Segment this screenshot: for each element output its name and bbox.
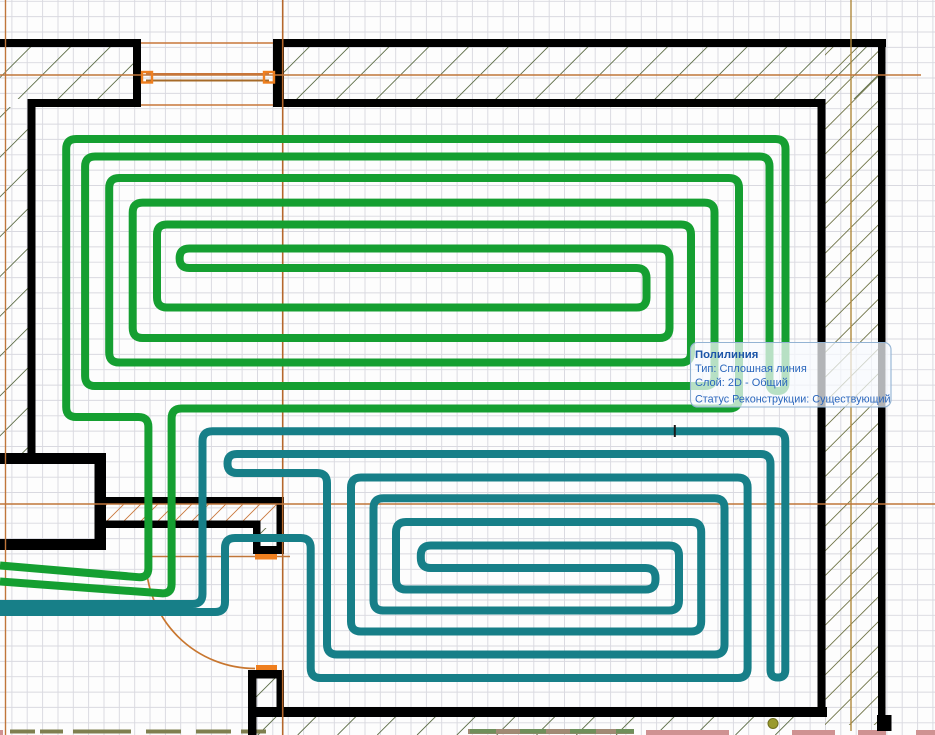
svg-text:Тип: Сплошная линия: Тип: Сплошная линия — [695, 363, 807, 375]
svg-text:Полилиния: Полилиния — [695, 349, 758, 361]
svg-text:Статус Реконструкции: Существу: Статус Реконструкции: Существующий — [695, 394, 891, 406]
svg-text:Слой: 2D - Общий: Слой: 2D - Общий — [695, 377, 788, 389]
